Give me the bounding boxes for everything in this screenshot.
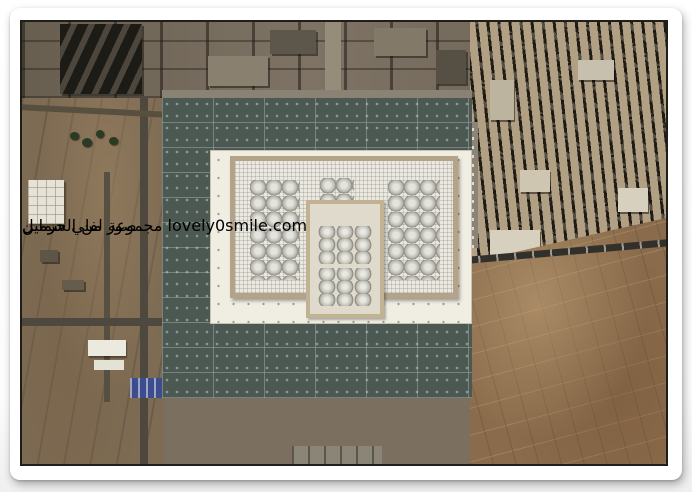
old-town-district (470, 22, 666, 260)
dome-grid (318, 268, 372, 306)
building-block (270, 30, 316, 54)
tree (82, 138, 92, 147)
ribbon-group-name: مجموعة لفلي سمايل (22, 216, 162, 235)
building-block (578, 60, 614, 80)
building-block (374, 28, 426, 56)
dome-cluster-east (388, 180, 440, 280)
dome-grid (318, 226, 372, 264)
mosque-old-core (306, 200, 384, 318)
building-block (618, 188, 648, 212)
building-block (208, 56, 268, 86)
building-block (490, 80, 514, 120)
white-tents (88, 340, 126, 356)
road (140, 98, 148, 464)
building-block (436, 50, 466, 84)
building-block (40, 250, 58, 262)
green-ribbon: مجموعة لفلي سمايل lovely0smile.com (22, 216, 307, 235)
page: صور من الحرمين مجموعة لفلي سمايل lovely0… (0, 0, 692, 492)
road-vertical-top (325, 22, 341, 98)
tree (70, 132, 79, 140)
building-block (292, 446, 382, 464)
tree (96, 130, 104, 138)
road (22, 318, 164, 326)
building-block (60, 24, 142, 94)
tree (109, 137, 118, 145)
building-block (520, 170, 550, 192)
photo-frame-card: صور من الحرمين مجموعة لفلي سمايل lovely0… (10, 8, 682, 480)
building-block (62, 280, 84, 290)
satellite-photo: صور من الحرمين مجموعة لفلي سمايل lovely0… (20, 20, 668, 466)
white-tents (94, 360, 124, 370)
road-horizontal (162, 90, 472, 98)
ribbon-domain[interactable]: lovely0smile.com (168, 216, 308, 235)
